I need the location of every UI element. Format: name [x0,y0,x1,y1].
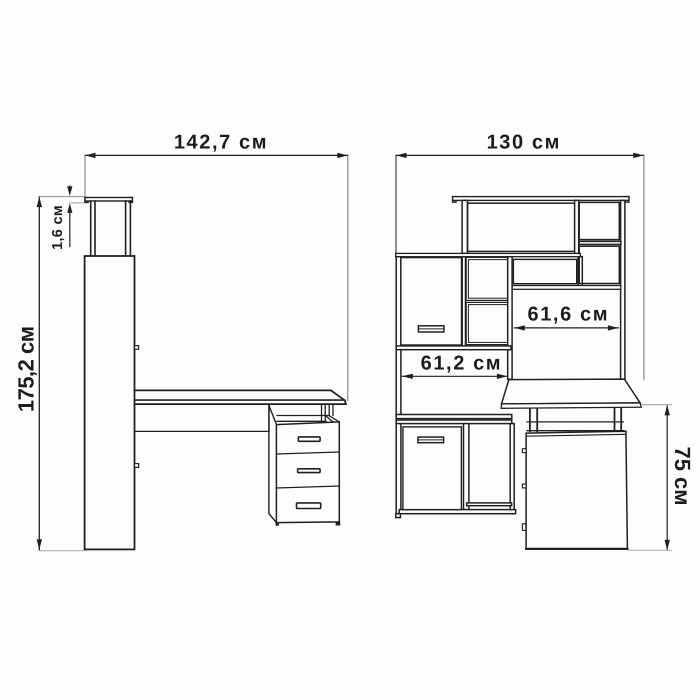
svg-text:175,2 см: 175,2 см [14,326,39,412]
svg-text:61,2 см: 61,2 см [421,352,503,374]
svg-text:61,6 см: 61,6 см [527,304,609,326]
svg-text:75 см: 75 см [670,446,695,505]
svg-text:130 см: 130 см [487,131,561,153]
svg-text:1,6 см: 1,6 см [50,205,66,250]
svg-text:142,7 см: 142,7 см [174,131,268,153]
